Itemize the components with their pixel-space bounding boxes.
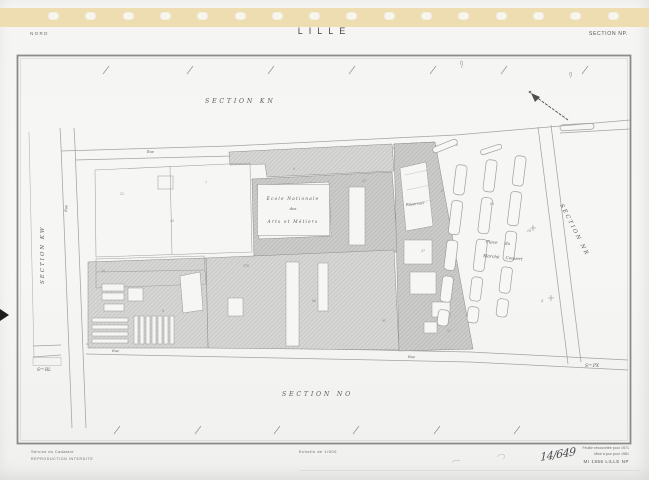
footer-service-label: Service du Cadastre bbox=[31, 449, 74, 454]
paper-edge-line bbox=[300, 470, 640, 471]
parcel-number: 7 bbox=[205, 181, 208, 185]
section-label-right: SECTION NR bbox=[558, 203, 590, 257]
footer-reproduction-label: REPRODUCTION INTERDITE bbox=[31, 457, 93, 461]
section-label-bottom: SECTION NO bbox=[282, 391, 353, 398]
parcel-number: 52 bbox=[447, 329, 451, 333]
parcel-number: 18 bbox=[527, 229, 531, 233]
section-corner-px: Sᵒⁿ PX bbox=[585, 364, 600, 369]
grid-crosses bbox=[530, 225, 554, 301]
parcel-number: 26 bbox=[100, 269, 105, 273]
parcel-number: 12 bbox=[120, 192, 124, 196]
street-label-bottom: Rue bbox=[111, 349, 119, 353]
pencil-mark bbox=[452, 460, 460, 462]
footer-renewal-label: Feuille renouvelée pour 1971 bbox=[582, 446, 629, 450]
parcel-number: 91 bbox=[382, 319, 386, 323]
cadastral-map: SECTION KN SECTION KW SECTION NR SECTION… bbox=[0, 0, 649, 480]
north-arrow bbox=[461, 61, 572, 120]
street-label-bottom-right: Rue bbox=[407, 355, 415, 359]
parcel-number: 118 bbox=[243, 264, 249, 268]
section-label-top: SECTION KN bbox=[205, 98, 276, 105]
street-label-top: Rue bbox=[146, 150, 154, 154]
parcel-number: 8 bbox=[162, 309, 164, 313]
parcel-number: 63 bbox=[490, 202, 494, 206]
section-corner-rl: Sᵒⁿ RL bbox=[37, 368, 51, 373]
parcel-number: 86 bbox=[312, 299, 316, 303]
building-label-line1: École Nationale bbox=[266, 196, 320, 202]
footer-sheet-reference: MI 1866 LILLE NP bbox=[584, 459, 629, 464]
parcel-number: 4 bbox=[540, 299, 543, 303]
section-label-left: SECTION KW bbox=[40, 226, 46, 284]
edge-marker bbox=[0, 309, 9, 321]
footer-update-label: Mise à jour pour 1981 bbox=[594, 452, 629, 456]
street-label-left: Rue bbox=[64, 205, 68, 213]
parcel-number: 21 bbox=[361, 179, 366, 183]
parcel-number: 5 bbox=[441, 189, 443, 193]
scanned-map-sheet: NORD LILLE SECTION NP. bbox=[0, 0, 649, 480]
parcel-number: 45 bbox=[169, 219, 174, 223]
building-label-line2: des bbox=[290, 206, 297, 211]
place-label-line2: Marché Couvert bbox=[482, 253, 523, 262]
place-label-line1: Place du bbox=[485, 239, 511, 246]
pencil-mark-2 bbox=[497, 454, 505, 459]
footer-scale-label: Echelle de 1/500 bbox=[299, 449, 337, 454]
building-label-line3: Arts et Métiers bbox=[267, 220, 319, 225]
parcel-number: 9 bbox=[293, 167, 295, 171]
